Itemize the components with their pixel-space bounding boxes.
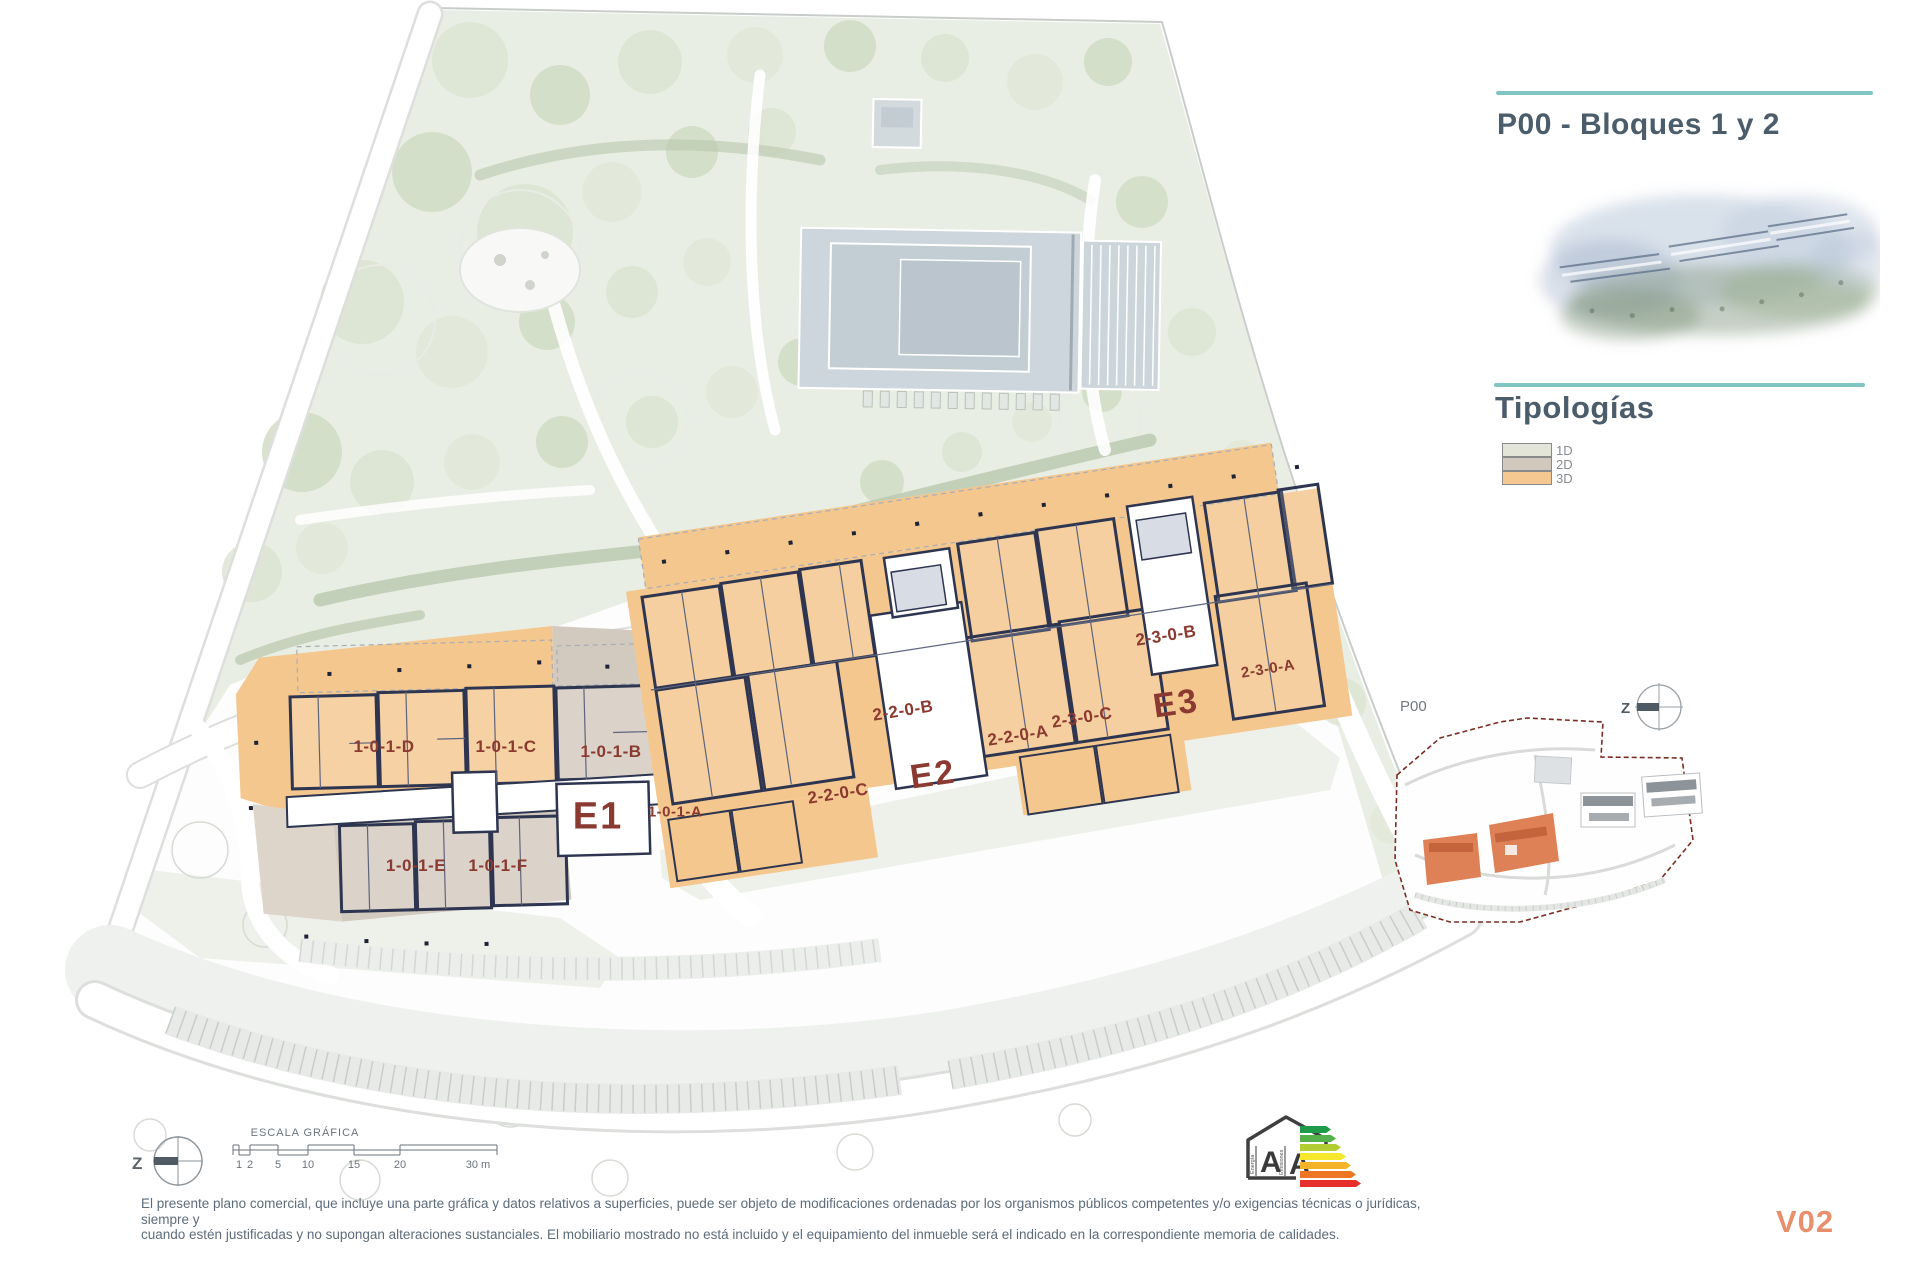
north-arrow-icon: Z xyxy=(1621,683,1683,731)
site-plan xyxy=(0,0,1500,1280)
scale-tick-label: 1 xyxy=(236,1159,242,1171)
building-illustration xyxy=(1520,140,1880,390)
legend-label: 1D xyxy=(1556,444,1573,458)
scale-tick-label: 5 xyxy=(275,1159,281,1171)
playground xyxy=(460,228,580,312)
scale-tick-label: 30 m xyxy=(466,1159,490,1171)
typologies-heading: Tipologías xyxy=(1495,390,1654,426)
energy-axis-label: Emisiones xyxy=(1279,1149,1285,1175)
accent-rule-mid xyxy=(1494,383,1865,387)
energy-axis-label: Energía xyxy=(1250,1154,1256,1174)
compass-letter: Z xyxy=(1621,700,1630,717)
north-arrow-icon: Z xyxy=(120,1128,240,1198)
disclaimer-line-1: El presente plano comercial, que incluye… xyxy=(141,1196,1451,1227)
legend-swatch-2d xyxy=(1502,457,1552,471)
page-title: P00 - Bloques 1 y 2 xyxy=(1497,108,1780,142)
legend-row: 3D xyxy=(1502,472,1573,486)
energy-rating-icon: A A Energía Emisiones xyxy=(1238,1108,1363,1200)
legend-label: 3D xyxy=(1556,472,1573,486)
scale-tick-label: 10 xyxy=(302,1159,314,1171)
typology-legend: 1D 2D 3D xyxy=(1502,444,1573,486)
energy-arrows xyxy=(1300,1126,1361,1187)
minimap: Z xyxy=(1385,655,1715,945)
scale-tick-label: 15 xyxy=(348,1159,360,1171)
compass-letter: Z xyxy=(132,1154,142,1173)
legend-swatch-1d xyxy=(1502,443,1552,457)
legend-swatch-3d xyxy=(1502,471,1552,485)
disclaimer: El presente plano comercial, que incluye… xyxy=(141,1196,1451,1243)
scale-bar: ESCALA GRÁFICA 1 2 5 10 15 20 30 m xyxy=(225,1122,525,1174)
accent-rule-top xyxy=(1496,91,1873,95)
legend-row: 1D xyxy=(1502,444,1573,458)
scale-title: ESCALA GRÁFICA xyxy=(251,1126,360,1139)
scale-tick-label: 20 xyxy=(394,1159,406,1171)
plan-sheet: E1 E2 E3 1-0-1-D 1-0-1-C 1-0-1-B 1-0-1-A… xyxy=(0,0,1920,1280)
legend-row: 2D xyxy=(1502,458,1573,472)
scale-tick-label: 2 xyxy=(247,1159,253,1171)
version-label: V02 xyxy=(1776,1204,1834,1240)
disclaimer-line-2: cuando estén justificadas y no supongan … xyxy=(141,1227,1451,1243)
legend-label: 2D xyxy=(1556,458,1573,472)
